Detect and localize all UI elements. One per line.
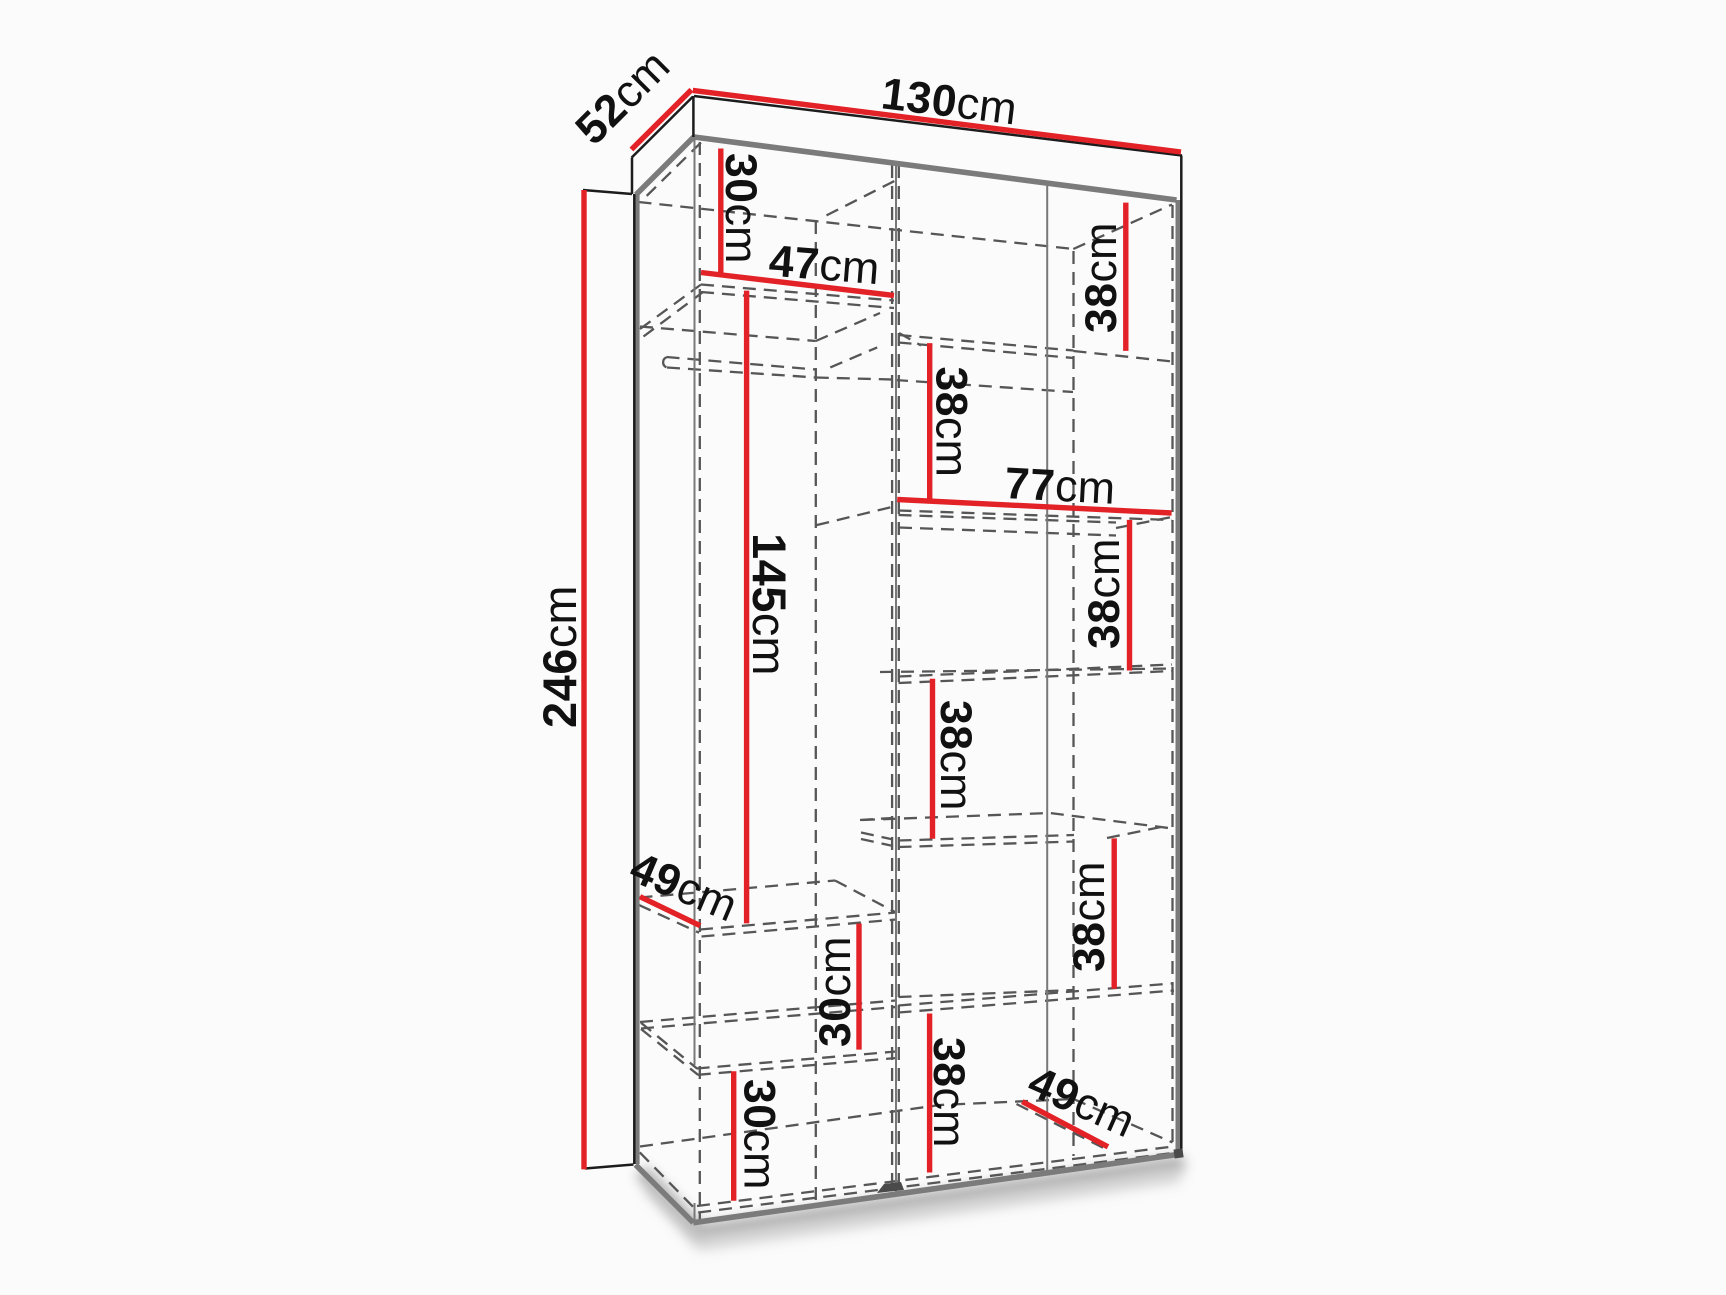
svg-text:30cm: 30cm xyxy=(716,153,767,264)
svg-text:47cm: 47cm xyxy=(767,235,881,295)
svg-text:246cm: 246cm xyxy=(533,585,586,728)
svg-text:30cm: 30cm xyxy=(809,937,860,1048)
svg-text:38cm: 38cm xyxy=(924,1037,975,1148)
svg-text:38cm: 38cm xyxy=(1063,862,1114,973)
svg-text:30cm: 30cm xyxy=(735,1079,786,1190)
svg-text:130cm: 130cm xyxy=(879,67,1020,134)
svg-text:38cm: 38cm xyxy=(1078,539,1129,650)
svg-text:38cm: 38cm xyxy=(1075,223,1126,334)
svg-text:145cm: 145cm xyxy=(743,533,796,676)
svg-text:77cm: 77cm xyxy=(1003,457,1116,514)
svg-text:52cm: 52cm xyxy=(565,40,679,154)
svg-text:38cm: 38cm xyxy=(927,367,978,478)
svg-text:38cm: 38cm xyxy=(931,700,982,811)
